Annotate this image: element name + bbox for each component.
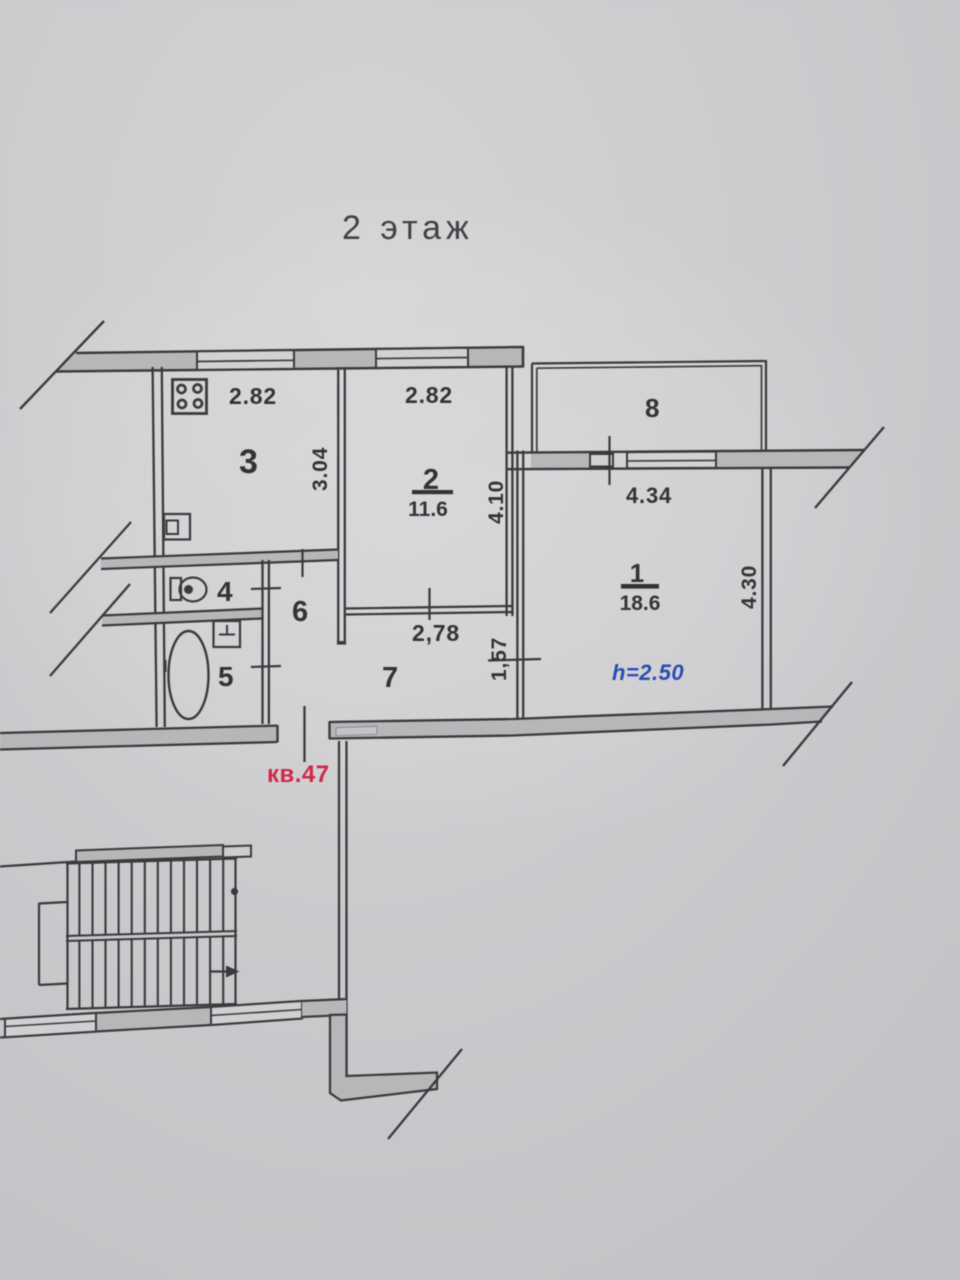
svg-text:2.82: 2.82 [405,382,453,408]
svg-text:1: 1 [630,558,644,588]
svg-text:4.34: 4.34 [626,483,672,508]
svg-text:4.30: 4.30 [738,565,761,609]
svg-text:7: 7 [382,662,398,694]
svg-text:3.04: 3.04 [309,447,332,491]
svg-text:8: 8 [645,393,659,423]
svg-text:5: 5 [218,661,234,692]
svg-text:18.6: 18.6 [620,592,661,615]
svg-text:4: 4 [217,576,233,607]
svg-text:h=2.50: h=2.50 [612,660,684,685]
svg-text:кв.47: кв.47 [267,761,330,788]
svg-text:1,57: 1,57 [488,637,511,681]
svg-text:6: 6 [292,596,308,628]
svg-text:2.82: 2.82 [229,383,277,409]
svg-text:11.6: 11.6 [408,498,448,521]
svg-text:2 этаж: 2 этаж [342,209,474,247]
svg-text:2,78: 2,78 [412,620,460,646]
svg-text:4.10: 4.10 [485,480,508,524]
svg-text:3: 3 [239,443,258,481]
